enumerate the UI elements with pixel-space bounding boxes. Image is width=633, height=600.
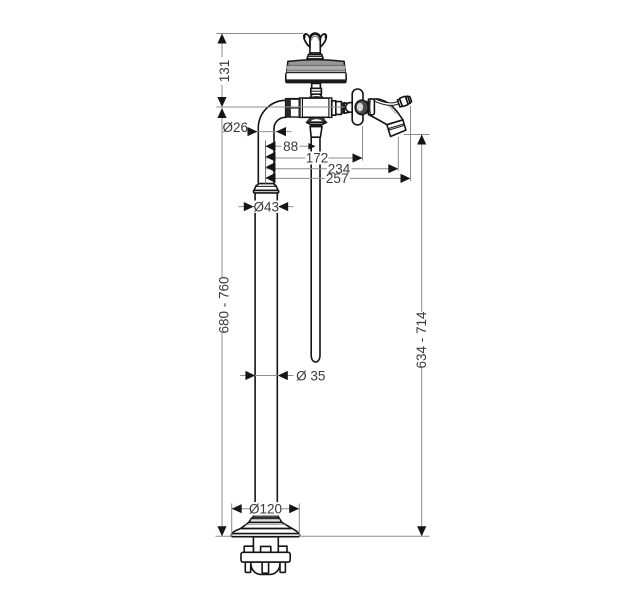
svg-text:Ø43: Ø43 bbox=[254, 199, 280, 214]
svg-text:680 - 760: 680 - 760 bbox=[217, 276, 232, 333]
svg-text:Ø120: Ø120 bbox=[249, 502, 282, 517]
svg-text:172: 172 bbox=[306, 151, 329, 166]
svg-text:Ø26: Ø26 bbox=[223, 120, 249, 135]
svg-text:Ø 35: Ø 35 bbox=[296, 368, 325, 383]
svg-text:257: 257 bbox=[326, 171, 349, 186]
svg-text:131: 131 bbox=[217, 60, 232, 83]
svg-text:88: 88 bbox=[283, 139, 298, 154]
svg-text:634 - 714: 634 - 714 bbox=[414, 311, 429, 369]
